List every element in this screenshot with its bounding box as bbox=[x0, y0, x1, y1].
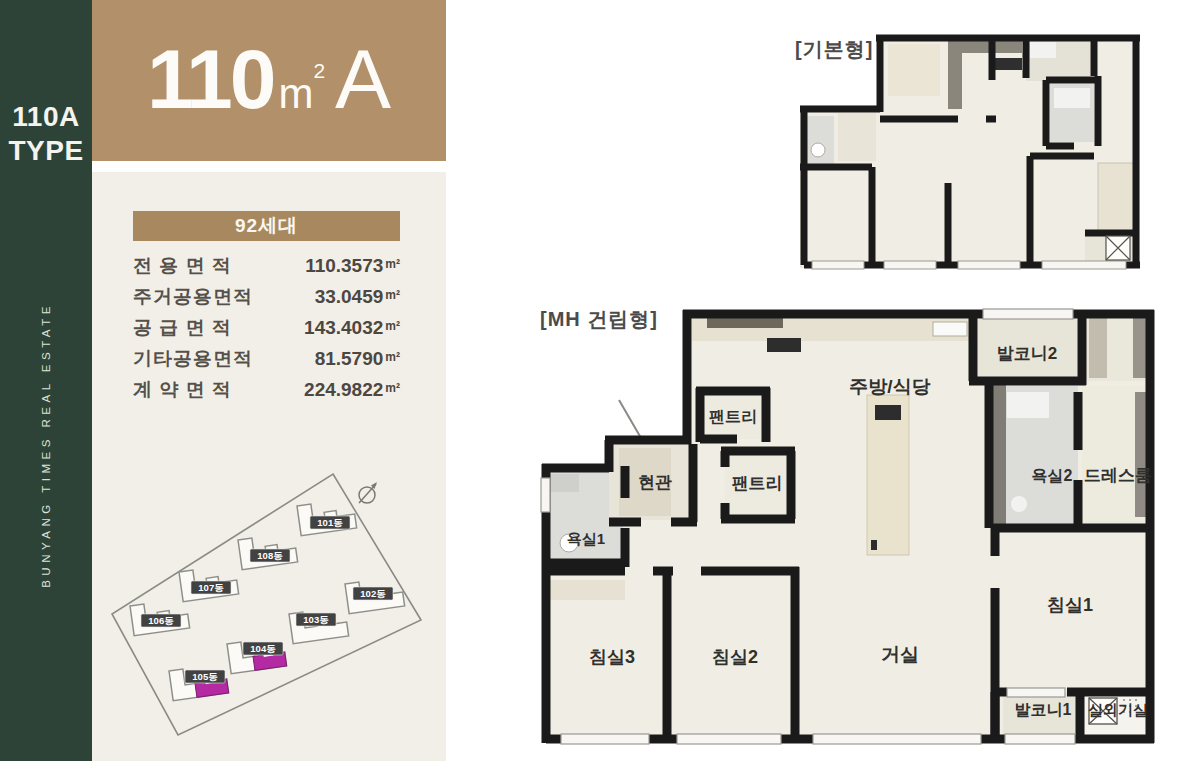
table-row: 계 약 면 적 224.9822m² bbox=[133, 374, 400, 405]
site-plan: 101동 108동 107동 106동 102동 103동 104동 105동 bbox=[105, 462, 435, 747]
row-label: 기타공용면적 bbox=[133, 346, 253, 372]
unit-type-label: 110A TYPE bbox=[0, 100, 92, 167]
area-exponent: 2 bbox=[313, 0, 325, 150]
svg-text:107동: 107동 bbox=[198, 582, 224, 593]
row-label: 전 용 면 적 bbox=[133, 253, 232, 279]
table-row: 기타공용면적 81.5790m² bbox=[133, 343, 400, 374]
room-label-outdoor-unit: 실외기실 bbox=[1088, 701, 1148, 720]
room-label-bath1: 욕실1 bbox=[567, 530, 605, 549]
compass-icon bbox=[359, 482, 377, 503]
brochure-page: 110A TYPE BUNYANG TIMES REAL ESTATE 110m… bbox=[0, 0, 1200, 761]
svg-text:108동: 108동 bbox=[257, 550, 283, 561]
row-label: 주거공용면적 bbox=[133, 284, 253, 310]
room-label-dressroom: 드레스룸 bbox=[1084, 464, 1152, 487]
table-row: 주거공용면적 33.0459m² bbox=[133, 281, 400, 312]
svg-text:106동: 106동 bbox=[148, 615, 174, 626]
room-label-living: 거실 bbox=[881, 642, 919, 668]
room-label-bath2: 욕실2 bbox=[1032, 466, 1073, 487]
row-value: 224.9822m² bbox=[232, 379, 400, 401]
sidebar: 110A TYPE BUNYANG TIMES REAL ESTATE bbox=[0, 0, 92, 761]
room-label-pantry2: 팬트리 bbox=[732, 472, 783, 495]
room-label-balcony1: 발코니1 bbox=[1015, 700, 1072, 721]
svg-text:105동: 105동 bbox=[192, 671, 218, 682]
brand-vertical-text: BUNYANG TIMES REAL ESTATE bbox=[40, 302, 52, 588]
svg-text:103동: 103동 bbox=[303, 614, 329, 625]
table-row: 공 급 면 적 143.4032m² bbox=[133, 312, 400, 343]
row-value: 81.5790m² bbox=[253, 348, 400, 370]
units-badge: 92세대 bbox=[133, 211, 400, 241]
room-label-balcony2: 발코니2 bbox=[997, 342, 1057, 365]
basic-floor-plan bbox=[798, 28, 1142, 270]
room-label-entrance: 현관 bbox=[638, 471, 672, 494]
svg-text:102동: 102동 bbox=[360, 588, 386, 599]
room-label-bed2: 침실2 bbox=[712, 645, 758, 669]
area-table: 전 용 면 적 110.3573m² 주거공용면적 33.0459m² 공 급 … bbox=[133, 250, 400, 405]
svg-text:101동: 101동 bbox=[317, 517, 343, 528]
title-block: 110m2A bbox=[92, 0, 446, 161]
area-unit: m bbox=[278, 70, 313, 117]
svg-text:104동: 104동 bbox=[250, 643, 276, 654]
row-value: 110.3573m² bbox=[232, 255, 400, 277]
area-number: 110 bbox=[147, 32, 274, 126]
room-label-pantry1: 팬트리 bbox=[709, 407, 757, 428]
row-label: 공 급 면 적 bbox=[133, 315, 232, 341]
row-value: 143.4032m² bbox=[232, 317, 400, 339]
mh-floor-plan bbox=[537, 300, 1162, 748]
room-label-bed3: 침실3 bbox=[589, 645, 635, 669]
room-label-kitchen: 주방/식당 bbox=[849, 374, 930, 400]
type-letter: A bbox=[335, 32, 391, 126]
row-value: 33.0459m² bbox=[253, 286, 400, 308]
room-label-bed1: 침실1 bbox=[1047, 593, 1093, 617]
table-row: 전 용 면 적 110.3573m² bbox=[133, 250, 400, 281]
row-label: 계 약 면 적 bbox=[133, 377, 232, 403]
